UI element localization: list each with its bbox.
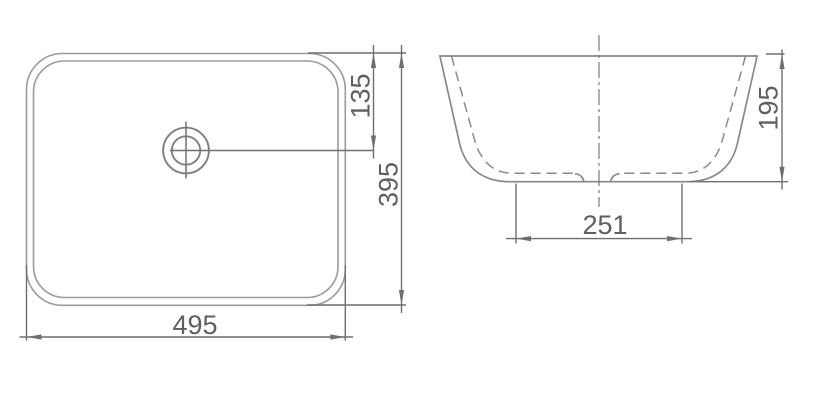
svg-text:135: 135 (346, 73, 376, 118)
svg-text:195: 195 (754, 85, 784, 130)
svg-text:495: 495 (172, 310, 217, 340)
svg-text:251: 251 (582, 210, 627, 240)
svg-text:395: 395 (374, 162, 404, 207)
